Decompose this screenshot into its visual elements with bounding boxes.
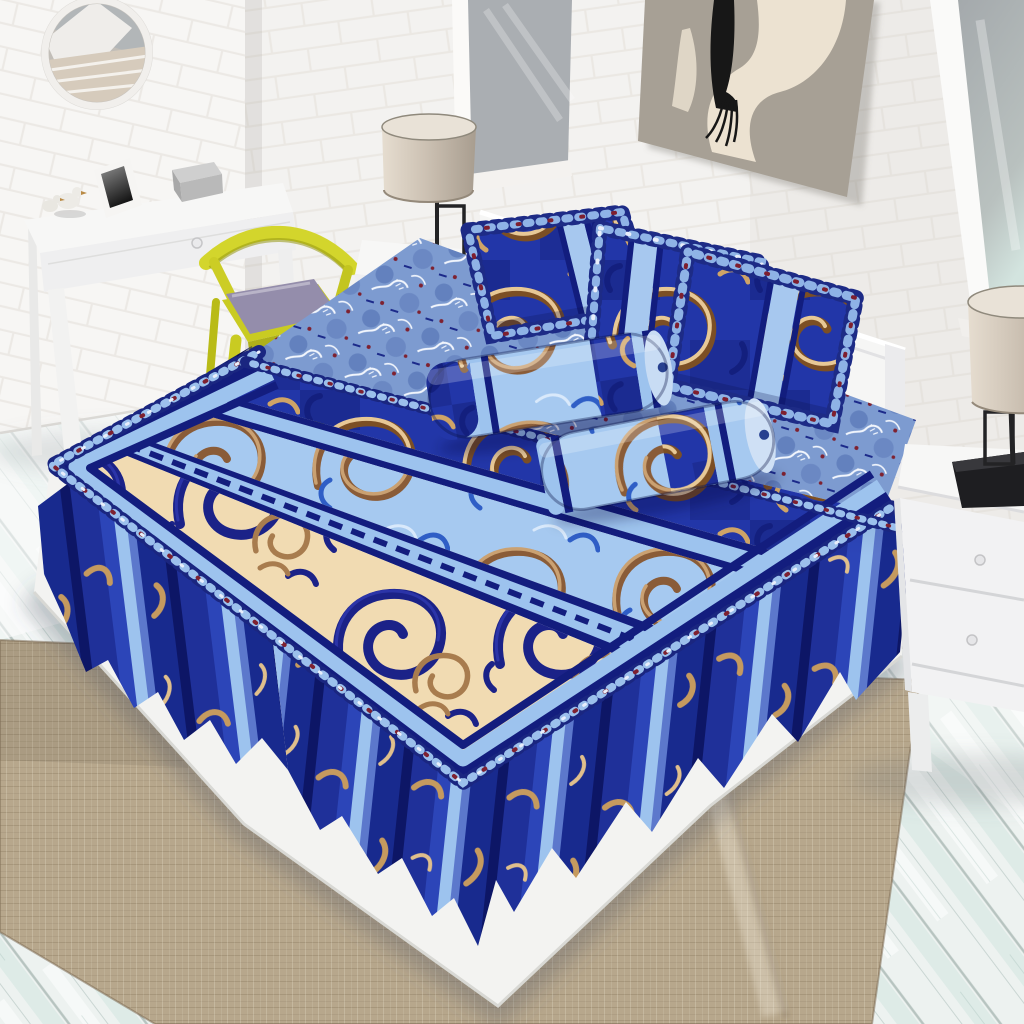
figurine-shadow (54, 210, 86, 218)
bedroom-product-photo (0, 0, 1024, 1024)
scene-canvas (0, 0, 1024, 1024)
nightstand-right-knob-top (975, 555, 985, 565)
table-drawer-knob (192, 238, 202, 248)
nightstand-right-knob-bottom (967, 635, 977, 645)
lamp-left-shade-top (382, 114, 476, 140)
nightstand-right-leg (908, 692, 932, 772)
nightstand-right-front (900, 498, 1024, 712)
bird-figurine-large-head (72, 187, 82, 197)
bird-figurine-small-head (53, 195, 61, 203)
